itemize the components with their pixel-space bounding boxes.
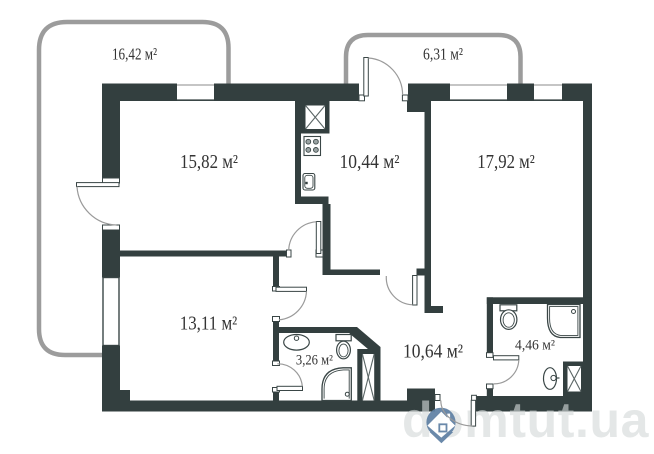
svg-text:3,26 м²: 3,26 м² [296,353,334,369]
svg-text:13,11 м²: 13,11 м² [180,313,238,335]
svg-text:15,82 м²: 15,82 м² [180,151,238,173]
svg-text:16,42 м²: 16,42 м² [112,45,157,64]
svg-text:17,92 м²: 17,92 м² [477,151,535,173]
svg-text:10,64 м²: 10,64 м² [403,341,463,363]
svg-text:10,44 м²: 10,44 м² [340,151,400,173]
svg-text:4,46 м²: 4,46 м² [515,338,556,354]
svg-text:6,31 м²: 6,31 м² [423,45,463,64]
